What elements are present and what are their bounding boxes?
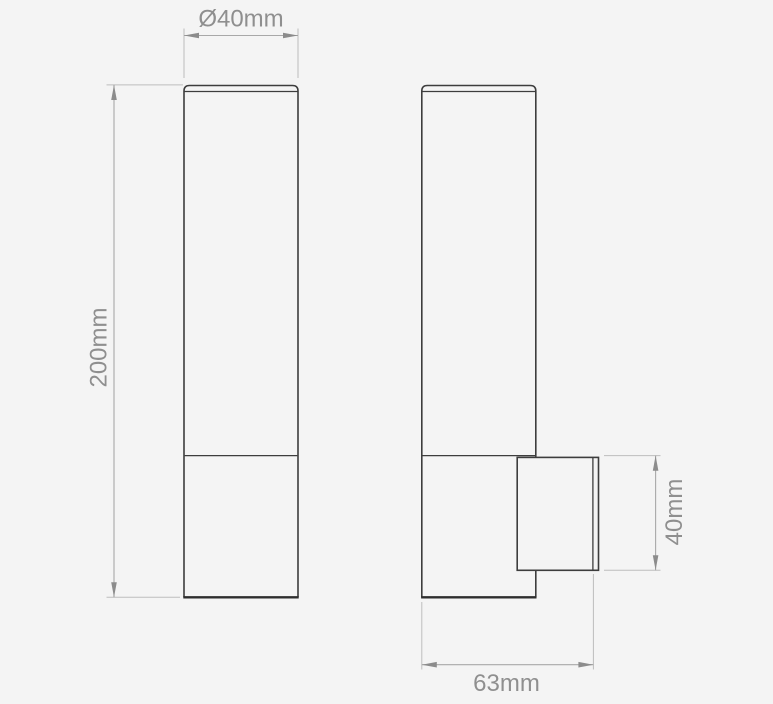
svg-text:Ø40mm: Ø40mm bbox=[198, 6, 283, 33]
svg-text:63mm: 63mm bbox=[473, 670, 540, 697]
svg-text:40mm: 40mm bbox=[661, 479, 688, 546]
svg-text:200mm: 200mm bbox=[86, 307, 113, 387]
